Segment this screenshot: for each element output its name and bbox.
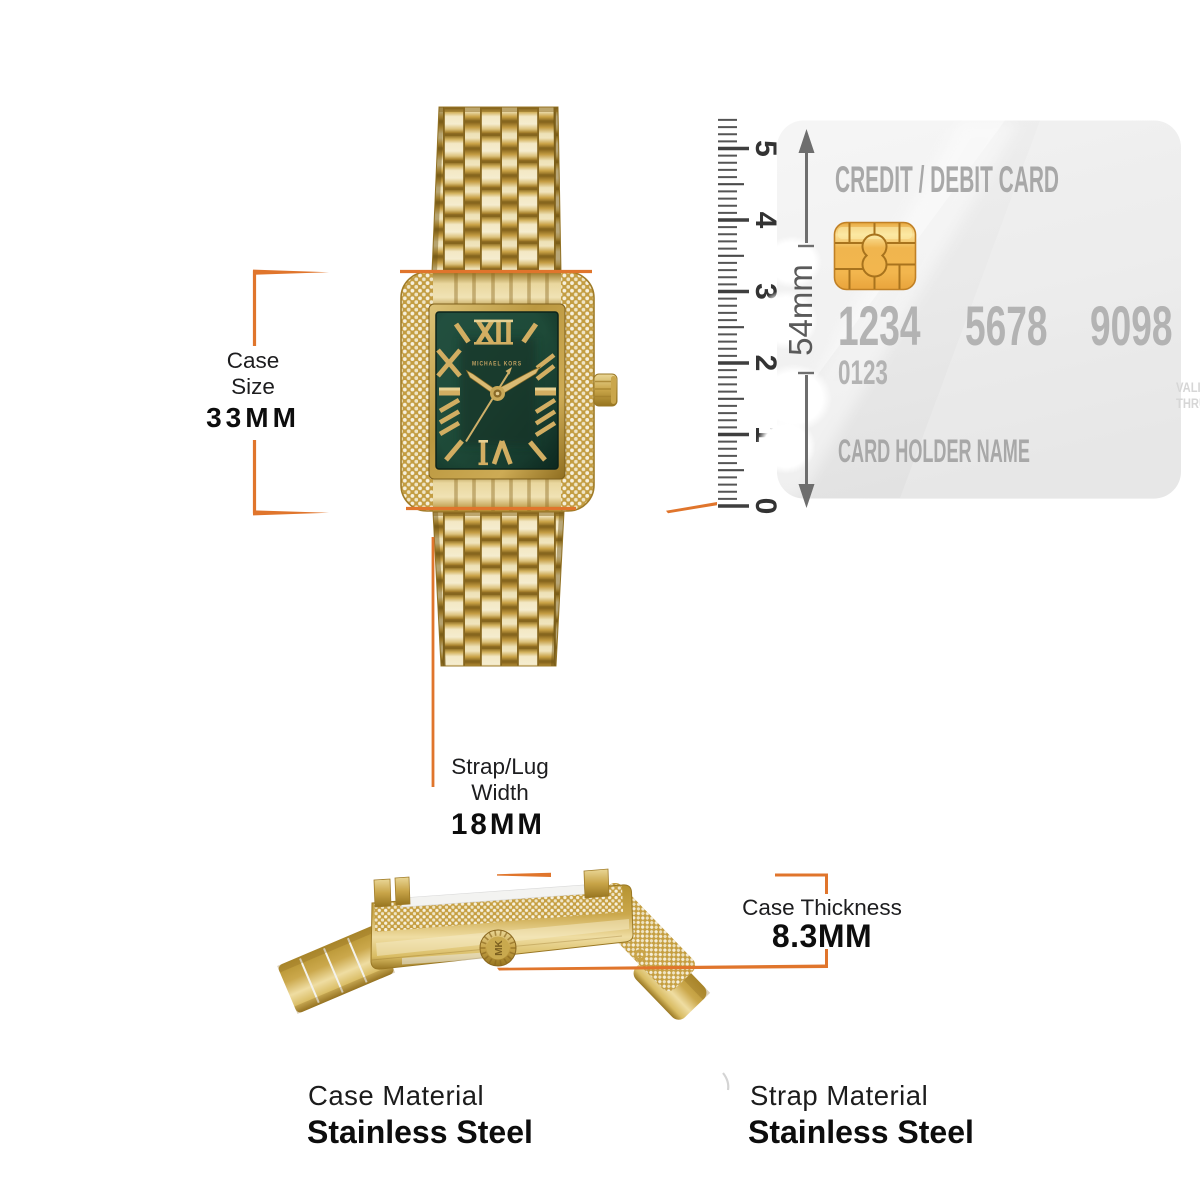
svg-text:CARD HOLDER NAME: CARD HOLDER NAME	[838, 434, 1030, 470]
svg-text:5678: 5678	[965, 295, 1048, 357]
svg-text:Stainless Steel: Stainless Steel	[307, 1114, 533, 1150]
svg-text:0123: 0123	[838, 354, 888, 392]
svg-text:VALID: VALID	[1176, 380, 1200, 395]
svg-text:Width: Width	[471, 780, 529, 805]
svg-text:0: 0	[749, 498, 782, 515]
svg-text:Stainless Steel: Stainless Steel	[748, 1114, 974, 1150]
svg-text:MICHAEL KORS: MICHAEL KORS	[472, 361, 522, 368]
svg-text:9098: 9098	[1090, 295, 1173, 357]
svg-text:1234: 1234	[838, 295, 921, 357]
svg-text:Size: Size	[231, 374, 275, 399]
svg-text:Case: Case	[227, 348, 280, 373]
svg-text:18MM: 18MM	[451, 808, 545, 841]
svg-text:MK: MK	[494, 939, 505, 955]
svg-text:33MM: 33MM	[206, 402, 300, 433]
svg-text:Strap/Lug: Strap/Lug	[451, 754, 549, 779]
svg-text:8.3MM: 8.3MM	[772, 918, 872, 954]
svg-text:CREDIT / DEBIT CARD: CREDIT / DEBIT CARD	[835, 160, 1059, 201]
svg-text:Case Thickness: Case Thickness	[742, 895, 902, 920]
svg-text:THRU: THRU	[1176, 396, 1200, 411]
svg-text:54mm: 54mm	[782, 264, 819, 356]
svg-text:Strap Material: Strap Material	[750, 1080, 928, 1111]
svg-text:Case Material: Case Material	[308, 1080, 484, 1111]
